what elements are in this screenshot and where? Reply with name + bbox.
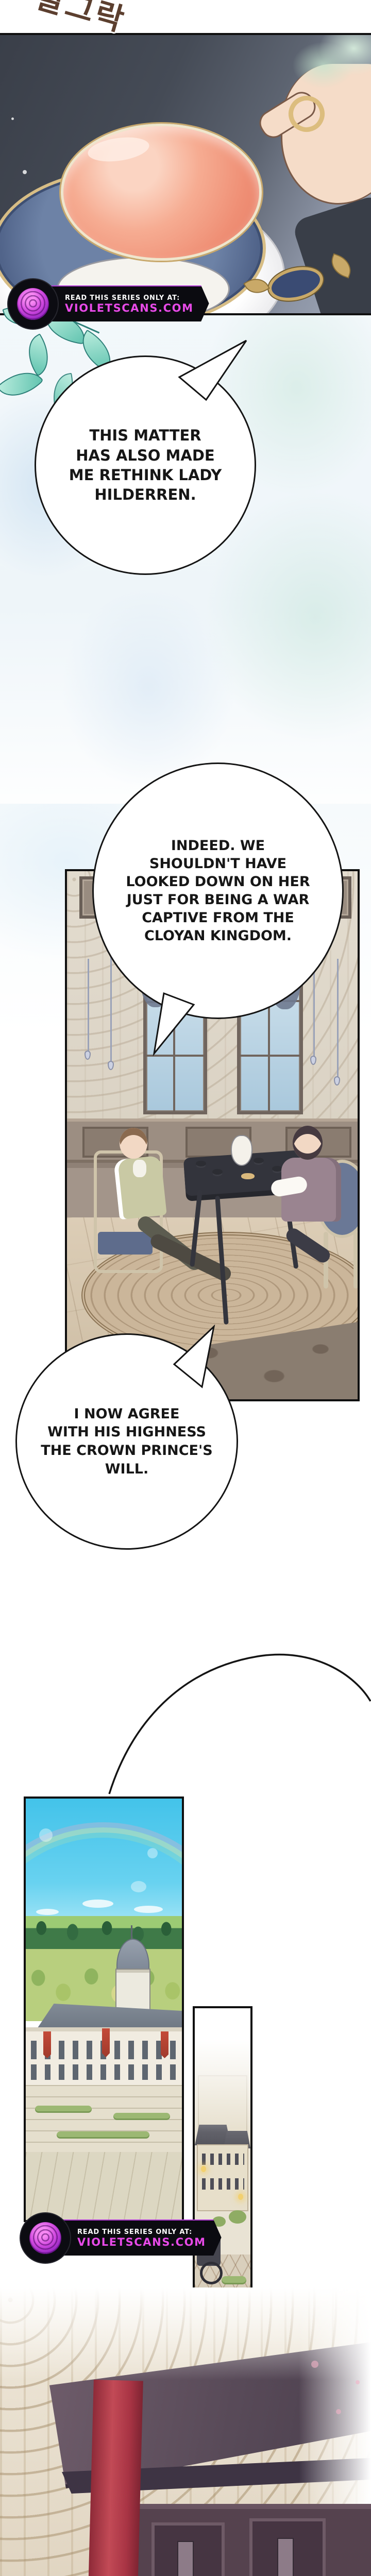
watermark-line1: READ THIS SERIES ONLY AT: — [77, 2228, 206, 2236]
pink-bokeh — [356, 2380, 360, 2384]
light-bokeh — [147, 1848, 158, 1858]
red-banner — [102, 2028, 110, 2057]
watermark-badge-middle: READ THIS SERIES ONLY AT: VIOLETSCANS.CO… — [20, 2212, 222, 2264]
carriage-wheel — [200, 2262, 223, 2284]
teacup-on-table — [254, 1158, 264, 1163]
headboard-wall — [133, 2504, 371, 2576]
panel-palace-landscape — [24, 1797, 184, 2222]
panel-top-fade — [195, 2008, 250, 2132]
pastry — [241, 1173, 255, 1179]
headboard-panel — [249, 2518, 326, 2576]
bubble1-line: ME RETHINK LADY — [69, 465, 222, 485]
bubble2-line: INDEED. WE — [171, 837, 265, 855]
bubble2-line: CAPTIVE FROM THE — [142, 909, 294, 927]
teacup-on-table — [212, 1169, 223, 1175]
sparkle-dot — [23, 170, 27, 174]
pink-bokeh — [336, 2409, 341, 2414]
man-right-head-bearded — [293, 1126, 323, 1160]
panel-teacup-scene — [0, 33, 371, 315]
red-banner — [161, 2031, 168, 2058]
light-bokeh — [131, 1881, 146, 1892]
bubble1-line: THIS MATTER — [89, 426, 201, 445]
lantern-glow — [238, 2194, 243, 2200]
greenery — [229, 2210, 246, 2224]
rose-icon — [29, 2222, 61, 2254]
bubble2-line: CLOYAN KINGDOM. — [144, 927, 292, 945]
sparkle-dot — [11, 117, 14, 120]
red-banner — [43, 2031, 51, 2058]
headboard-slot — [177, 2541, 194, 2576]
headboard-panel — [151, 2522, 225, 2576]
window-mullion — [240, 1055, 300, 1057]
headboard-slot — [277, 2538, 294, 2576]
bubble1-line: HILDERREN. — [94, 485, 196, 504]
building-windows — [202, 2154, 244, 2165]
palace-gardens — [26, 2152, 182, 2220]
speech-bubble-3: I NOW AGREE WITH HIS HIGHNESS THE CROWN … — [15, 1333, 238, 1550]
cloud — [82, 1900, 113, 1908]
lantern-glow — [201, 2166, 206, 2172]
bubble3-line: I NOW AGREE — [74, 1405, 180, 1423]
rose-icon — [17, 288, 49, 320]
light-bokeh — [39, 1828, 53, 1842]
watermark-icon-circle — [7, 278, 59, 330]
garden-hedge — [57, 2131, 149, 2139]
chair-left-seat — [98, 1232, 153, 1255]
man-left-cravat — [133, 1160, 146, 1177]
speech-bubble-1: THIS MATTER HAS ALSO MADE ME RETHINK LAD… — [35, 355, 256, 575]
webtoon-page: 달그락 READ THIS SERIES ONLY AT: VIOLETSCAN… — [0, 0, 371, 2576]
leaf — [20, 333, 58, 377]
watermark-banner: READ THIS SERIES ONLY AT: VIOLETSCANS.CO… — [63, 2219, 222, 2256]
scene-right-fade — [299, 2287, 371, 2504]
pink-bokeh — [311, 2361, 318, 2368]
watermark-site-link[interactable]: VIOLETSCANS.COM — [77, 2236, 206, 2248]
building-windows — [202, 2178, 244, 2190]
bubble3-line: WITH HIS HIGHNESS — [47, 1423, 206, 1442]
chandelier-chain — [88, 959, 89, 1052]
bubble3-line: THE CROWN PRINCE'S — [41, 1442, 212, 1460]
bubble3-line: WILL. — [105, 1460, 149, 1479]
chair-right-leg — [353, 1232, 358, 1289]
planter-box — [222, 2276, 246, 2284]
corner-leaf-wash — [284, 35, 371, 102]
watermark-line1: READ THIS SERIES ONLY AT: — [65, 294, 194, 302]
bubble2-line: LOOKED DOWN ON HER — [126, 873, 310, 891]
watermark-site-link[interactable]: VIOLETSCANS.COM — [65, 302, 194, 314]
man-left-head — [120, 1128, 147, 1159]
scene-bedroom — [0, 2287, 371, 2576]
garden-hedge — [35, 2106, 92, 2113]
cloud — [134, 1906, 163, 1913]
white-teapot — [231, 1135, 252, 1166]
window-mullion — [146, 1055, 204, 1057]
chandelier-chain — [110, 954, 112, 1062]
sky — [26, 1799, 182, 1919]
cloud — [36, 1909, 59, 1915]
tea-surface — [61, 124, 262, 261]
tower-spire — [131, 1925, 132, 1940]
bubble2-line: JUST FOR BEING A WAR — [127, 891, 310, 909]
teacup-on-table — [272, 1166, 282, 1172]
teacup-on-table — [196, 1161, 206, 1166]
watermark-banner: READ THIS SERIES ONLY AT: VIOLETSCANS.CO… — [50, 285, 209, 321]
bubble2-line: SHOULDN'T HAVE — [149, 855, 286, 873]
garden-hedge — [113, 2113, 170, 2120]
palace-windows-row — [31, 2064, 177, 2080]
watermark-icon-circle — [20, 2212, 71, 2264]
speech-bubble-2: INDEED. WE SHOULDN'T HAVE LOOKED DOWN ON… — [92, 762, 344, 1019]
bubble1-line: HAS ALSO MADE — [76, 446, 214, 465]
chandelier-chain — [337, 959, 339, 1077]
decorative-circle-arc — [109, 1655, 370, 1794]
